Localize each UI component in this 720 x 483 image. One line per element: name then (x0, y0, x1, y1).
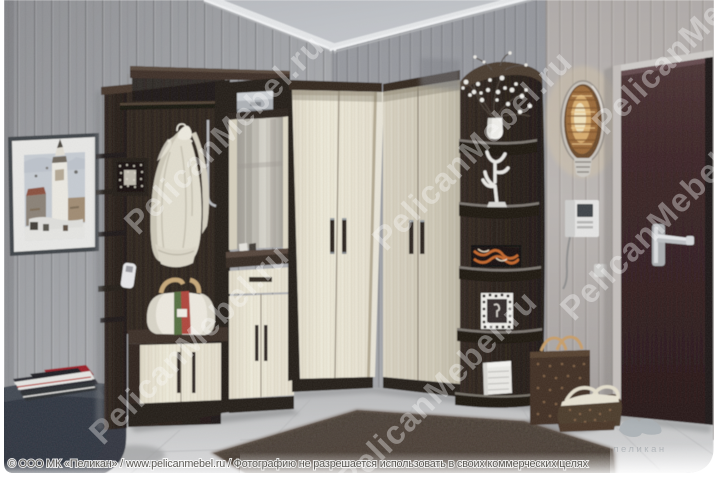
svg-text:© ООО МК «Пеликан» / www.pelic: © ООО МК «Пеликан» / www.pelicanmebel.ru… (8, 458, 588, 470)
